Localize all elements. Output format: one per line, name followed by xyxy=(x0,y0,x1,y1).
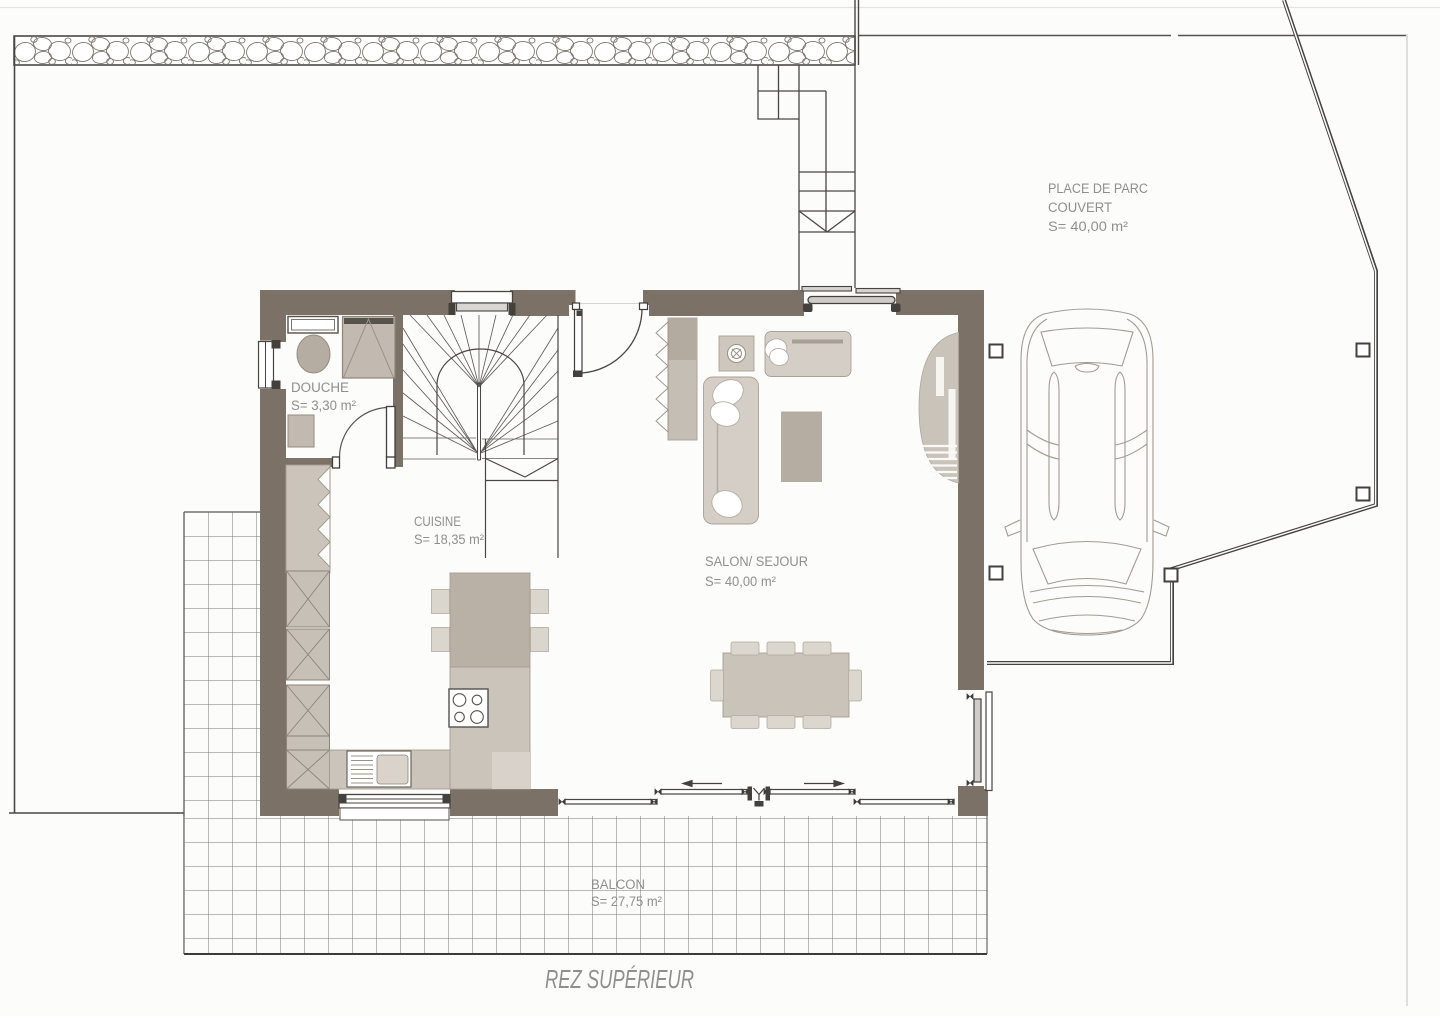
svg-text:REZ SUPÉRIEUR: REZ SUPÉRIEUR xyxy=(545,965,694,994)
svg-text:S= 27,75 m²: S= 27,75 m² xyxy=(591,894,662,909)
svg-text:S= 40,00 m²: S= 40,00 m² xyxy=(1048,219,1129,234)
svg-text:S= 40,00 m²: S= 40,00 m² xyxy=(705,574,776,589)
svg-text:COUVERT: COUVERT xyxy=(1048,200,1112,215)
svg-text:CUISINE: CUISINE xyxy=(414,514,461,529)
svg-text:S= 18,35 m²: S= 18,35 m² xyxy=(414,532,484,547)
svg-text:DOUCHE: DOUCHE xyxy=(291,380,349,395)
svg-text:S= 3,30 m²: S= 3,30 m² xyxy=(291,398,356,413)
svg-text:BALCON: BALCON xyxy=(591,877,645,892)
svg-text:SALON/ SEJOUR: SALON/ SEJOUR xyxy=(705,554,808,569)
svg-text:PLACE DE PARC: PLACE DE PARC xyxy=(1048,181,1148,196)
